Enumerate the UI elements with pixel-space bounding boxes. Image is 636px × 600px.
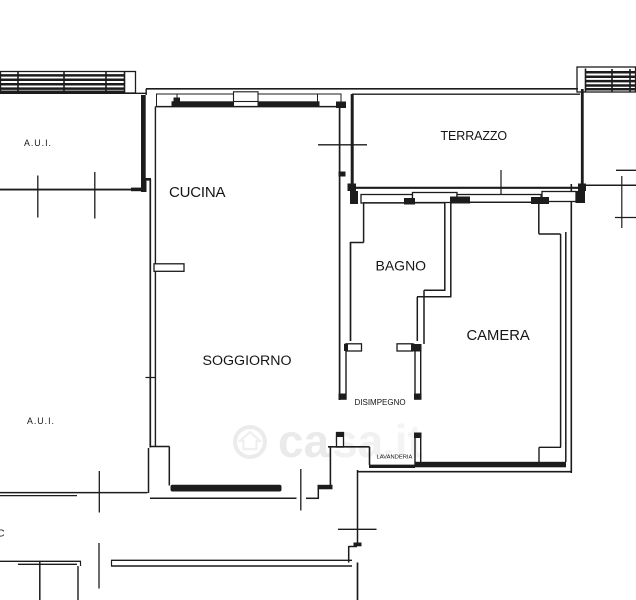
svg-text:BAGNO: BAGNO <box>376 258 427 274</box>
svg-text:CAMERA: CAMERA <box>467 328 530 344</box>
svg-text:A.U.I.: A.U.I. <box>24 138 52 148</box>
svg-text:SOGGIORNO: SOGGIORNO <box>203 353 292 369</box>
svg-text:CUCINA: CUCINA <box>169 184 225 201</box>
svg-text:DISIMPEGNO: DISIMPEGNO <box>355 398 406 407</box>
svg-text:A.U.I.: A.U.I. <box>27 416 55 426</box>
svg-text:C: C <box>0 528 5 540</box>
svg-text:TERRAZZO: TERRAZZO <box>441 129 508 143</box>
svg-text:LAVANDERIA: LAVANDERIA <box>377 454 413 460</box>
svg-text:ca: ca <box>278 415 330 467</box>
